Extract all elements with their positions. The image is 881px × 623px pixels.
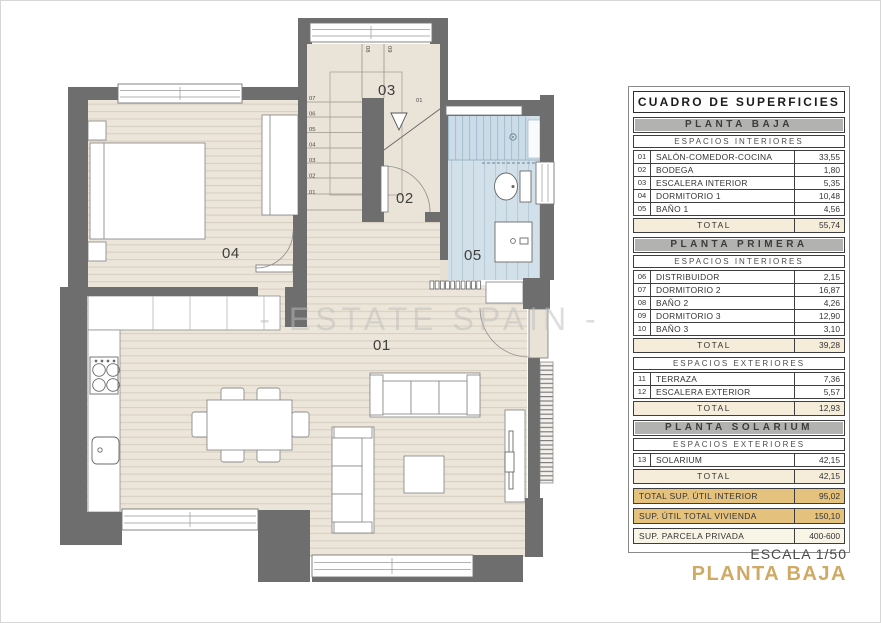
section-planta-baja: PLANTA BAJA ESPACIOS INTERIORES 01SALÓN-… (633, 117, 845, 233)
exterior-stair-hatch (540, 362, 553, 483)
sofa-vertical (332, 427, 374, 533)
subheader-espacios-exteriores: ESPACIOS EXTERIORES (633, 438, 845, 451)
nightstand (88, 242, 106, 261)
summary-parcela-privada: SUP. PARCELA PRIVADA400-600 (633, 528, 845, 544)
section-planta-solarium: PLANTA SOLARIUM ESPACIOS EXTERIORES 13SO… (633, 420, 845, 484)
total-planta-primera-ext: TOTAL12,93 (633, 401, 845, 416)
sofa-horizontal (370, 373, 480, 417)
total-planta-baja: TOTAL55,74 (633, 218, 845, 233)
subheader-espacios-interiores: ESPACIOS INTERIORES (633, 135, 845, 148)
rows-planta-primera-int: 06DISTRIBUIDOR2,15 07DORMITORIO 216,87 0… (633, 270, 845, 336)
door-tag: 01 (416, 98, 422, 104)
table-row: 04DORMITORIO 110,48 (634, 190, 844, 203)
window-living-bottom (312, 555, 473, 577)
header-planta-primera: PLANTA PRIMERA (633, 237, 845, 253)
nightstand (88, 121, 106, 140)
table-row: 01SALÓN-COMEDOR-COCINA33,55 (634, 151, 844, 164)
table-row: 06DISTRIBUIDOR2,15 (634, 271, 844, 284)
table-row: 13SOLARIUM42,15 (634, 454, 844, 466)
summary-total-interior: TOTAL SUP. ÚTIL INTERIOR95,02 (633, 488, 845, 504)
svg-text:04: 04 (309, 143, 316, 149)
surface-table-panel: CUADRO DE SUPERFICIES PLANTA BAJA ESPACI… (628, 86, 850, 553)
table-row: 02BODEGA1,80 (634, 164, 844, 177)
room-label-salon: 01 (373, 337, 391, 354)
panel-title: CUADRO DE SUPERFICIES (633, 91, 845, 113)
bath-sink-icon (495, 222, 532, 262)
bathroom-top-glazing (446, 106, 522, 115)
svg-text:05: 05 (309, 127, 315, 133)
total-planta-solarium: TOTAL42,15 (633, 469, 845, 484)
toilet-icon (495, 171, 532, 202)
rows-planta-solarium: 13SOLARIUM42,15 (633, 453, 845, 467)
table-row: 08BAÑO 24,26 (634, 297, 844, 310)
table-row: 09DORMITORIO 312,90 (634, 310, 844, 323)
header-planta-baja: PLANTA BAJA (633, 117, 845, 133)
table-row: 10BAÑO 33,10 (634, 323, 844, 335)
svg-text:06: 06 (309, 112, 315, 118)
rows-planta-primera-ext: 11TERRAZA7,36 12ESCALERA EXTERIOR5,57 (633, 372, 845, 399)
watermark: - ESTATE SPAIN - (259, 301, 600, 337)
room-label-bodega: 02 (396, 190, 414, 207)
dining-table (207, 400, 292, 450)
summary-total-vivienda: SUP. ÚTIL TOTAL VIVIENDA150,10 (633, 508, 845, 524)
sheet-footer: ESCALA 1/50 PLANTA BAJA (692, 546, 847, 586)
header-planta-solarium: PLANTA SOLARIUM (633, 420, 845, 436)
table-row: 12ESCALERA EXTERIOR5,57 (634, 386, 844, 398)
window-stairwell (310, 23, 432, 42)
room-label-escalera: 03 (378, 82, 396, 99)
window-bathroom (536, 162, 554, 204)
window-living-left (122, 509, 258, 530)
room-label-bano: 05 (464, 247, 482, 264)
table-row: 07DORMITORIO 216,87 (634, 284, 844, 297)
rows-planta-baja: 01SALÓN-COMEDOR-COCINA33,55 02BODEGA1,80… (633, 150, 845, 216)
total-planta-primera-int: TOTAL39,28 (633, 338, 845, 353)
sheet-title: PLANTA BAJA (692, 563, 847, 586)
room-label-dormitorio: 04 (222, 245, 240, 262)
svg-text:03: 03 (309, 158, 315, 164)
coffee-table (404, 456, 444, 493)
svg-text:02: 02 (309, 174, 315, 180)
subheader-espacios-exteriores: ESPACIOS EXTERIORES (633, 357, 845, 370)
table-row: 11TERRAZA7,36 (634, 373, 844, 386)
svg-text:08: 08 (364, 46, 370, 52)
scale-label: ESCALA 1/50 (692, 546, 847, 562)
kitchen-sink-icon (92, 437, 119, 464)
floor-plan-sheet: - ESTATE SPAIN - 01 02 03 04 05 07 06 05… (0, 0, 881, 623)
hall-cabinet (486, 282, 523, 303)
stove-icon (90, 357, 119, 394)
svg-text:09: 09 (386, 46, 392, 52)
svg-text:01: 01 (309, 190, 315, 196)
window-bedroom (118, 84, 242, 103)
svg-text:07: 07 (309, 96, 315, 102)
wardrobe (262, 115, 298, 215)
table-row: 03ESCALERA INTERIOR5,35 (634, 177, 844, 190)
table-row: 05BAÑO 14,56 (634, 203, 844, 215)
tv-unit (505, 410, 525, 502)
subheader-espacios-interiores: ESPACIOS INTERIORES (633, 255, 845, 268)
section-planta-primera: PLANTA PRIMERA ESPACIOS INTERIORES 06DIS… (633, 237, 845, 416)
